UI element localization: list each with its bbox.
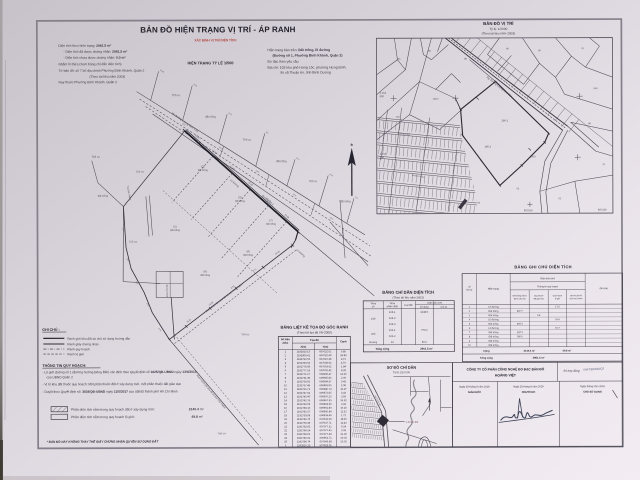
svg-text:Hiện trạng: Hiện trạng [488, 287, 500, 290]
svg-text:1.71: 1.71 [341, 414, 346, 417]
svg-text:49.8 m²: 49.8 m² [191, 415, 203, 419]
svg-text:(Theo tài liệu năm 2003): (Theo tài liệu năm 2003) [393, 295, 424, 299]
svg-text:HIỆN TRẠNG TỶ LỆ 1/500: HIỆN TRẠNG TỶ LỆ 1/500 [187, 60, 233, 65]
svg-text:Thổ cư: Thổ cư [217, 431, 225, 435]
svg-text:100: 100 [396, 116, 401, 119]
svg-text:1192769.01: 1192769.01 [297, 432, 311, 436]
svg-text:1192782.31: 1192782.31 [297, 436, 311, 440]
svg-text:3.43: 3.43 [341, 380, 346, 383]
svg-text:2.09: 2.09 [341, 377, 346, 380]
svg-text:Đất trống: Đất trống [489, 314, 500, 317]
svg-text:606962.80: 606962.80 [320, 406, 333, 410]
svg-text:Tổng cộng: Tổng cộng [480, 357, 493, 360]
svg-text:1.84: 1.84 [341, 365, 346, 368]
svg-text:Thông tin quy hoạch: Thông tin quy hoạch [537, 285, 559, 288]
svg-text:đất giáo dục: đất giáo dục [534, 297, 544, 300]
svg-text:THÔNG TIN QUY HOẠCH:: THÔNG TIN QUY HOẠCH: [42, 363, 86, 368]
svg-text:1192759.91: 1192759.91 [297, 379, 311, 383]
svg-text:thứ tự: thứ tự [466, 289, 473, 292]
svg-text:Thổ cư: Thổ cư [243, 138, 252, 142]
svg-text:- Vị trí khu đất thuộc quy hoạ: - Vị trí khu đất thuộc quy hoạch: Một ph… [42, 382, 181, 386]
svg-text:1192738.15: 1192738.15 [297, 406, 311, 410]
svg-text:của UBND Quận 2: của UBND Quận 2 [46, 375, 73, 379]
svg-text:607003.62: 607003.62 [319, 364, 332, 368]
svg-text:1192742.76: 1192742.76 [297, 398, 311, 402]
svg-text:vị trí khu đất: vị trí khu đất [406, 421, 419, 424]
svg-text:607015.38: 607015.38 [319, 357, 332, 361]
svg-text:- Diện tích đã được chứng nhận: - Diện tích đã được chứng nhận: 2961.5 m… [63, 50, 128, 54]
svg-text:Hiện trạng bản trên: Đất trống: Hiện trạng bản trên: Đất trống, lề đường [267, 48, 330, 52]
svg-text:1192809.41: 1192809.41 [297, 353, 311, 357]
svg-text:8.33: 8.33 [341, 369, 346, 372]
svg-text:đất trống: đất trống [235, 200, 245, 203]
svg-text:606960.84: 606960.84 [320, 409, 333, 413]
svg-text:15.7: 15.7 [555, 328, 560, 330]
svg-text:1192745.40: 1192745.40 [297, 394, 311, 398]
svg-text:606970.25: 606970.25 [319, 394, 332, 398]
svg-text:Thổ cư: Thổ cư [91, 155, 100, 159]
svg-text:106-2: 106-2 [389, 335, 396, 338]
svg-text:606981.95: 606981.95 [319, 383, 332, 387]
svg-text:697.7: 697.7 [517, 311, 523, 313]
svg-text:điểm: điểm [282, 342, 289, 345]
svg-text:Phần diện tích nằm trong quy h: Phần diện tích nằm trong quy hoạch lộ gi… [71, 414, 135, 419]
svg-text:1192740.09: 1192740.09 [297, 402, 311, 406]
svg-text:Ngày 28 tháng 8 năm 2018: Ngày 28 tháng 8 năm 2018 [459, 385, 490, 388]
svg-text:Cạnh: Cạnh [340, 339, 347, 343]
svg-text:773.0: 773.0 [421, 329, 428, 332]
svg-text:đất trống: đất trống [170, 229, 180, 232]
svg-text:49.8 m²: 49.8 m² [563, 349, 572, 353]
svg-text:BẢNG CHỈ DẪN DIỆN TÍCH: BẢNG CHỈ DẪN DIỆN TÍCH [382, 290, 434, 295]
svg-text:- Duyệt theo Quyết định số: 36: - Duyệt theo Quyết định số: 3634/QĐ-UBND… [42, 389, 177, 393]
svg-text:106-1: 106-1 [501, 119, 508, 122]
svg-text:106-1: 106-1 [389, 329, 396, 332]
svg-text:2140.4 m²: 2140.4 m² [189, 407, 205, 411]
svg-text:- Diện tích chưa được chứng nh: - Diện tích chưa được chứng nhận: 0.0 m² [63, 56, 126, 60]
svg-text:Tờ bản đồ: số 7 bộ địa chính P: Tờ bản đồ: số 7 bộ địa chính Phường Bình… [58, 69, 144, 73]
svg-text:360.0: 360.0 [517, 336, 523, 338]
svg-text:Đất trống: Đất trống [489, 323, 500, 326]
svg-text:Thổ cư: Thổ cư [129, 240, 137, 244]
svg-text:BẢN ĐỒ VỊ TRÍ: BẢN ĐỒ VỊ TRÍ [483, 21, 514, 26]
svg-text:đất ở xây mới: đất ở xây mới [514, 297, 526, 300]
svg-text:607008.62: 607008.62 [319, 361, 332, 365]
svg-text:Quy hoạch: Quy hoạch [553, 295, 562, 297]
svg-text:11.27: 11.27 [340, 388, 347, 391]
svg-text:còn lại: còn lại [440, 307, 447, 309]
svg-text:606967.35: 606967.35 [319, 398, 332, 402]
svg-text:1192746.76: 1192746.76 [297, 417, 311, 421]
svg-text:606961.71: 606961.71 [320, 436, 333, 440]
svg-text:3.43: 3.43 [341, 392, 346, 395]
svg-text:607045.89: 607045.89 [320, 439, 333, 443]
svg-text:106: 106 [371, 333, 376, 336]
svg-text:16.26: 16.26 [340, 407, 347, 410]
svg-text:QH khu đô thị: QH khu đô thị [570, 294, 582, 297]
svg-text:18.60: 18.60 [340, 418, 347, 421]
svg-text:1192747.64: 1192747.64 [297, 391, 311, 395]
svg-text:đất trống: đất trống [266, 223, 276, 226]
svg-text:1192790.53: 1192790.53 [297, 357, 311, 361]
svg-text:1192755.71: 1192755.71 [297, 387, 311, 391]
svg-text:1.152: 1.152 [380, 152, 387, 156]
svg-text:X(m): X(m) [300, 345, 306, 349]
svg-text:Ranh quy hoạch: Ranh quy hoạch [67, 347, 90, 351]
svg-text:13.26: 13.26 [340, 373, 347, 376]
svg-text:1192796.74: 1192796.74 [297, 439, 311, 443]
svg-text:105-1: 105-1 [389, 311, 396, 314]
svg-text:607022.01: 607022.01 [319, 349, 332, 353]
svg-text:1192761.39: 1192761.39 [297, 376, 311, 380]
svg-text:12.42: 12.42 [340, 422, 347, 425]
svg-text:607100: 607100 [598, 208, 607, 212]
svg-text:Cộng: Cộng [483, 350, 490, 353]
svg-text:606959.40: 606959.40 [320, 413, 333, 417]
svg-text:phân chiết: phân chiết [387, 305, 398, 308]
svg-text:607047.71: 607047.71 [320, 421, 333, 425]
svg-text:Đo đạc theo yêu cầu: Đo đạc theo yêu cầu [267, 60, 298, 64]
svg-text:đất trống: đất trống [243, 254, 253, 257]
svg-text:(2): (2) [201, 164, 204, 168]
svg-text:606972.85: 606972.85 [319, 391, 332, 395]
svg-text:Tỷ lệ 1/10.000: Tỷ lệ 1/10.000 [393, 370, 411, 374]
svg-text:đường chùa: đường chùa [165, 284, 169, 297]
svg-text:lộ giới: lộ giới [555, 298, 561, 300]
svg-text:607002.42: 607002.42 [319, 368, 332, 372]
svg-text:Y(m): Y(m) [322, 345, 328, 349]
svg-text:1192777.19: 1192777.19 [297, 368, 311, 372]
svg-text:Diện tích (m²): Diện tích (m²) [427, 302, 442, 305]
svg-text:SƠ ĐỒ CHỈ DẪN: SƠ ĐỒ CHỈ DẪN [387, 365, 417, 370]
svg-text:105-1: 105-1 [485, 145, 492, 148]
svg-text:1192750.39: 1192750.39 [297, 421, 311, 425]
svg-text:607022.49: 607022.49 [319, 353, 332, 357]
svg-text:17.5: 17.5 [555, 306, 560, 308]
svg-text:thị xã Thuận An, tỉnh Bình Dươ: thị xã Thuận An, tỉnh Bình Dương [280, 70, 331, 74]
svg-text:2.43: 2.43 [341, 403, 346, 406]
svg-text:(8): (8) [246, 249, 249, 253]
svg-text:Ranh giới khu đất do chủ sử dụ: Ranh giới khu đất do chủ sử dụng hướng d… [67, 336, 130, 341]
svg-text:Diện tích (m²): Diện tích (m²) [540, 277, 555, 280]
svg-text:Tọa độ: Tọa độ [310, 338, 319, 342]
svg-text:600: 600 [380, 94, 385, 98]
svg-text:607077.45: 607077.45 [320, 428, 333, 432]
svg-text:Ranh lộ giới: Ranh lộ giới [67, 352, 84, 356]
svg-text:2961.5 m²: 2961.5 m² [420, 347, 432, 351]
svg-text:Lề đường: Lề đường [488, 318, 499, 321]
svg-text:606964.60: 606964.60 [320, 402, 333, 406]
svg-text:Quy hoạch: Quy hoạch [534, 295, 543, 297]
svg-text:sử dụng: sử dụng [420, 306, 429, 309]
svg-text:105-3: 105-3 [389, 323, 396, 326]
svg-text:1192810.13: 1192810.13 [297, 349, 311, 353]
svg-text:606980.74: 606980.74 [319, 387, 332, 391]
svg-text:Loại đất: Loại đất [404, 304, 413, 307]
svg-text:4.71: 4.71 [341, 358, 346, 361]
svg-text:108-2: 108-2 [433, 98, 440, 101]
svg-text:Thổ cư: Thổ cư [309, 179, 318, 183]
svg-text:3.33: 3.33 [341, 429, 346, 432]
svg-text:Đường: Đường [370, 341, 378, 344]
svg-text:11.32: 11.32 [341, 410, 348, 413]
svg-text:Thổ cư: Thổ cư [172, 93, 181, 97]
svg-text:21.26: 21.26 [340, 433, 347, 436]
svg-text:Đất trống: Đất trống [489, 310, 500, 313]
svg-text:695.4: 695.4 [517, 324, 523, 326]
svg-text:(Theo tài liệu năm 2003): (Theo tài liệu năm 2003) [89, 75, 125, 79]
svg-text:- Lộ giới đường số 1 (đường hư: - Lộ giới đường số 1 (đường hướng Đông B… [42, 369, 196, 374]
svg-text:607077.49: 607077.49 [320, 432, 333, 436]
svg-text:BẢNG LIỆT KÊ TỌA ĐỘ GỐC RANH: BẢNG LIỆT KÊ TỌA ĐỘ GỐC RANH [280, 324, 348, 329]
svg-text:607022.09: 607022.09 [320, 417, 333, 421]
svg-text:16.6: 16.6 [555, 319, 560, 321]
svg-text:mới Thủ Thiêm: mới Thủ Thiêm [570, 297, 583, 300]
svg-text:387.3: 387.3 [517, 332, 523, 334]
svg-text:1192762.82: 1192762.82 [297, 424, 311, 428]
svg-text:(Đường số 1, Phường Bình Khánh: (Đường số 1, Phường Bình Khánh, Quận 2) [272, 53, 342, 57]
svg-text:(Theo tài liệu năm 2003): (Theo tài liệu năm 2003) [482, 31, 516, 35]
svg-text:1192735.27: 1192735.27 [297, 409, 311, 413]
svg-text:đất trống: đất trống [200, 274, 210, 277]
svg-text:1192757.48: 1192757.48 [297, 383, 311, 387]
svg-text:105-2: 105-2 [389, 317, 396, 320]
svg-text:(7): (7) [269, 218, 272, 222]
svg-text:QH không nằm ở: QH không nằm ở [512, 294, 527, 297]
svg-text:Địa chỉ: 103 khu phố Hưng Lộc,: Địa chỉ: 103 khu phố Hưng Lộc, phường Hư… [267, 65, 346, 69]
svg-text:105: 105 [371, 318, 376, 321]
svg-text:607077.21: 607077.21 [320, 424, 333, 428]
svg-text:CÔNG TY CỔ PHẦN CÔNG NGHỆ ĐO Đ: CÔNG TY CỔ PHẦN CÔNG NGHỆ ĐO ĐẠC BẢN ĐỒ [467, 366, 545, 371]
svg-text:(5): (5) [173, 224, 176, 228]
svg-text:1192771.17: 1192771.17 [297, 372, 311, 376]
svg-text:105-2: 105-2 [530, 156, 537, 158]
svg-text:2140.4 m²: 2140.4 m² [524, 349, 536, 353]
svg-text:GHI CHÚ :: GHI CHÚ : [42, 327, 59, 332]
svg-text:606985.82: 606985.82 [319, 376, 332, 380]
svg-text:(9): (9) [204, 269, 207, 273]
svg-text:Lề đường: Lề đường [488, 306, 499, 309]
svg-text:Tổng cộng: Tổng cộng [375, 347, 389, 351]
svg-text:940: 940 [594, 87, 599, 90]
svg-text:Số hiệu: Số hiệu [281, 338, 291, 341]
svg-text:Nay thuộc Phường Bình Khánh, Q: Nay thuộc Phường Bình Khánh, Quận 2 [59, 80, 118, 84]
svg-text:Diện tích theo hiện trạng: 296: Diện tích theo hiện trạng: 2961.5 m² [58, 44, 112, 48]
svg-text:Ngày tháng năm 2018: Ngày tháng năm 2018 [580, 385, 605, 388]
svg-text:1192778.08: 1192778.08 [297, 364, 311, 368]
svg-text:XÁC ĐỊNH VỊ TRÍ DIỆN TÍCH: XÁC ĐỊNH VỊ TRÍ DIỆN TÍCH [194, 37, 237, 42]
svg-text:đất trống: đất trống [98, 194, 109, 198]
svg-text:đất trống: đất trống [198, 169, 208, 172]
svg-text:1192733.08: 1192733.08 [297, 413, 311, 417]
svg-text:2961.5 m²: 2961.5 m² [533, 356, 545, 360]
svg-text:20.02: 20.02 [341, 440, 348, 443]
svg-text:Số hợp đồng:: Số hợp đồng: [563, 369, 580, 373]
svg-text:Nhằm lô thửa (Xem bảng chỉ dẫn: Nhằm lô thửa (Xem bảng chỉ dẫn diện tích… [58, 61, 121, 66]
svg-text:105: 105 [396, 58, 401, 61]
svg-text:3.93: 3.93 [341, 395, 346, 398]
svg-text:Lề đường: Lề đường [488, 327, 499, 330]
svg-text:Ngày 28 tháng 8 năm 2018: Ngày 28 tháng 8 năm 2018 [513, 385, 544, 388]
svg-text:1192783.53: 1192783.53 [297, 361, 311, 365]
svg-text:4.70: 4.70 [341, 362, 346, 365]
svg-text:đất trống: đất trống [276, 159, 287, 163]
svg-text:Tỷ lệ: 1/2000: Tỷ lệ: 1/2000 [489, 27, 507, 31]
svg-text:16.32: 16.32 [340, 399, 347, 402]
svg-text:607022.01: 607022.01 [320, 443, 333, 447]
svg-text:Thổ cư: Thổ cư [241, 332, 249, 336]
svg-text:5.24: 5.24 [341, 425, 346, 428]
svg-text:(3): (3) [238, 195, 241, 199]
svg-text:50.0: 50.0 [422, 341, 427, 344]
svg-text:(Theo hệ tọa độ VN-2000): (Theo hệ tọa độ VN-2000) [297, 330, 332, 334]
svg-text:Phần diện tích nằm trong quy h: Phần diện tích nằm trong quy hoạch đất ở… [71, 406, 155, 411]
svg-text:Đất trống: Đất trống [489, 340, 500, 343]
svg-text:1192766.54: 1192766.54 [297, 428, 311, 432]
svg-text:đất trống: đất trống [205, 115, 216, 119]
svg-text:1192810.13: 1192810.13 [297, 443, 311, 447]
svg-text:2138.5: 2138.5 [420, 311, 428, 314]
svg-text:BẢNG GHI CHÚ DIỆN TÍCH: BẢNG GHI CHÚ DIỆN TÍCH [514, 264, 572, 269]
svg-text:Ghi chú: Ghi chú [600, 287, 609, 290]
svg-text:20.02: 20.02 [341, 437, 348, 440]
svg-text:606996.47: 606996.47 [319, 372, 332, 376]
svg-text:0.89: 0.89 [341, 350, 346, 353]
svg-text:607050: 607050 [524, 208, 533, 212]
svg-text:Đất trống: Đất trống [489, 335, 500, 338]
svg-text:HOÀNG VIỆT: HOÀNG VIỆT [495, 372, 517, 377]
svg-text:BẢN ĐỒ HIỆN TRẠNG VỊ TRÍ - ÁP: BẢN ĐỒ HIỆN TRẠNG VỊ TRÍ - ÁP RANH [140, 24, 295, 34]
svg-text:đất trống: đất trống [340, 199, 351, 203]
svg-text:24.89: 24.89 [340, 354, 347, 357]
svg-text:Ranh giấy chứng nhận: Ranh giấy chứng nhận [67, 342, 99, 346]
svg-text:* BẢN ĐỒ NÀY KHÔNG THAY THẾ GI: * BẢN ĐỒ NÀY KHÔNG THAY THẾ GIẤY CHỨNG N… [47, 439, 160, 444]
svg-text:Đất trống: Đất trống [489, 344, 500, 347]
svg-text:606984.37: 606984.37 [319, 379, 332, 383]
svg-text:Đất trống: Đất trống [489, 331, 500, 334]
svg-text:2.08: 2.08 [341, 384, 346, 387]
svg-text:Thổ cư: Thổ cư [136, 170, 144, 174]
